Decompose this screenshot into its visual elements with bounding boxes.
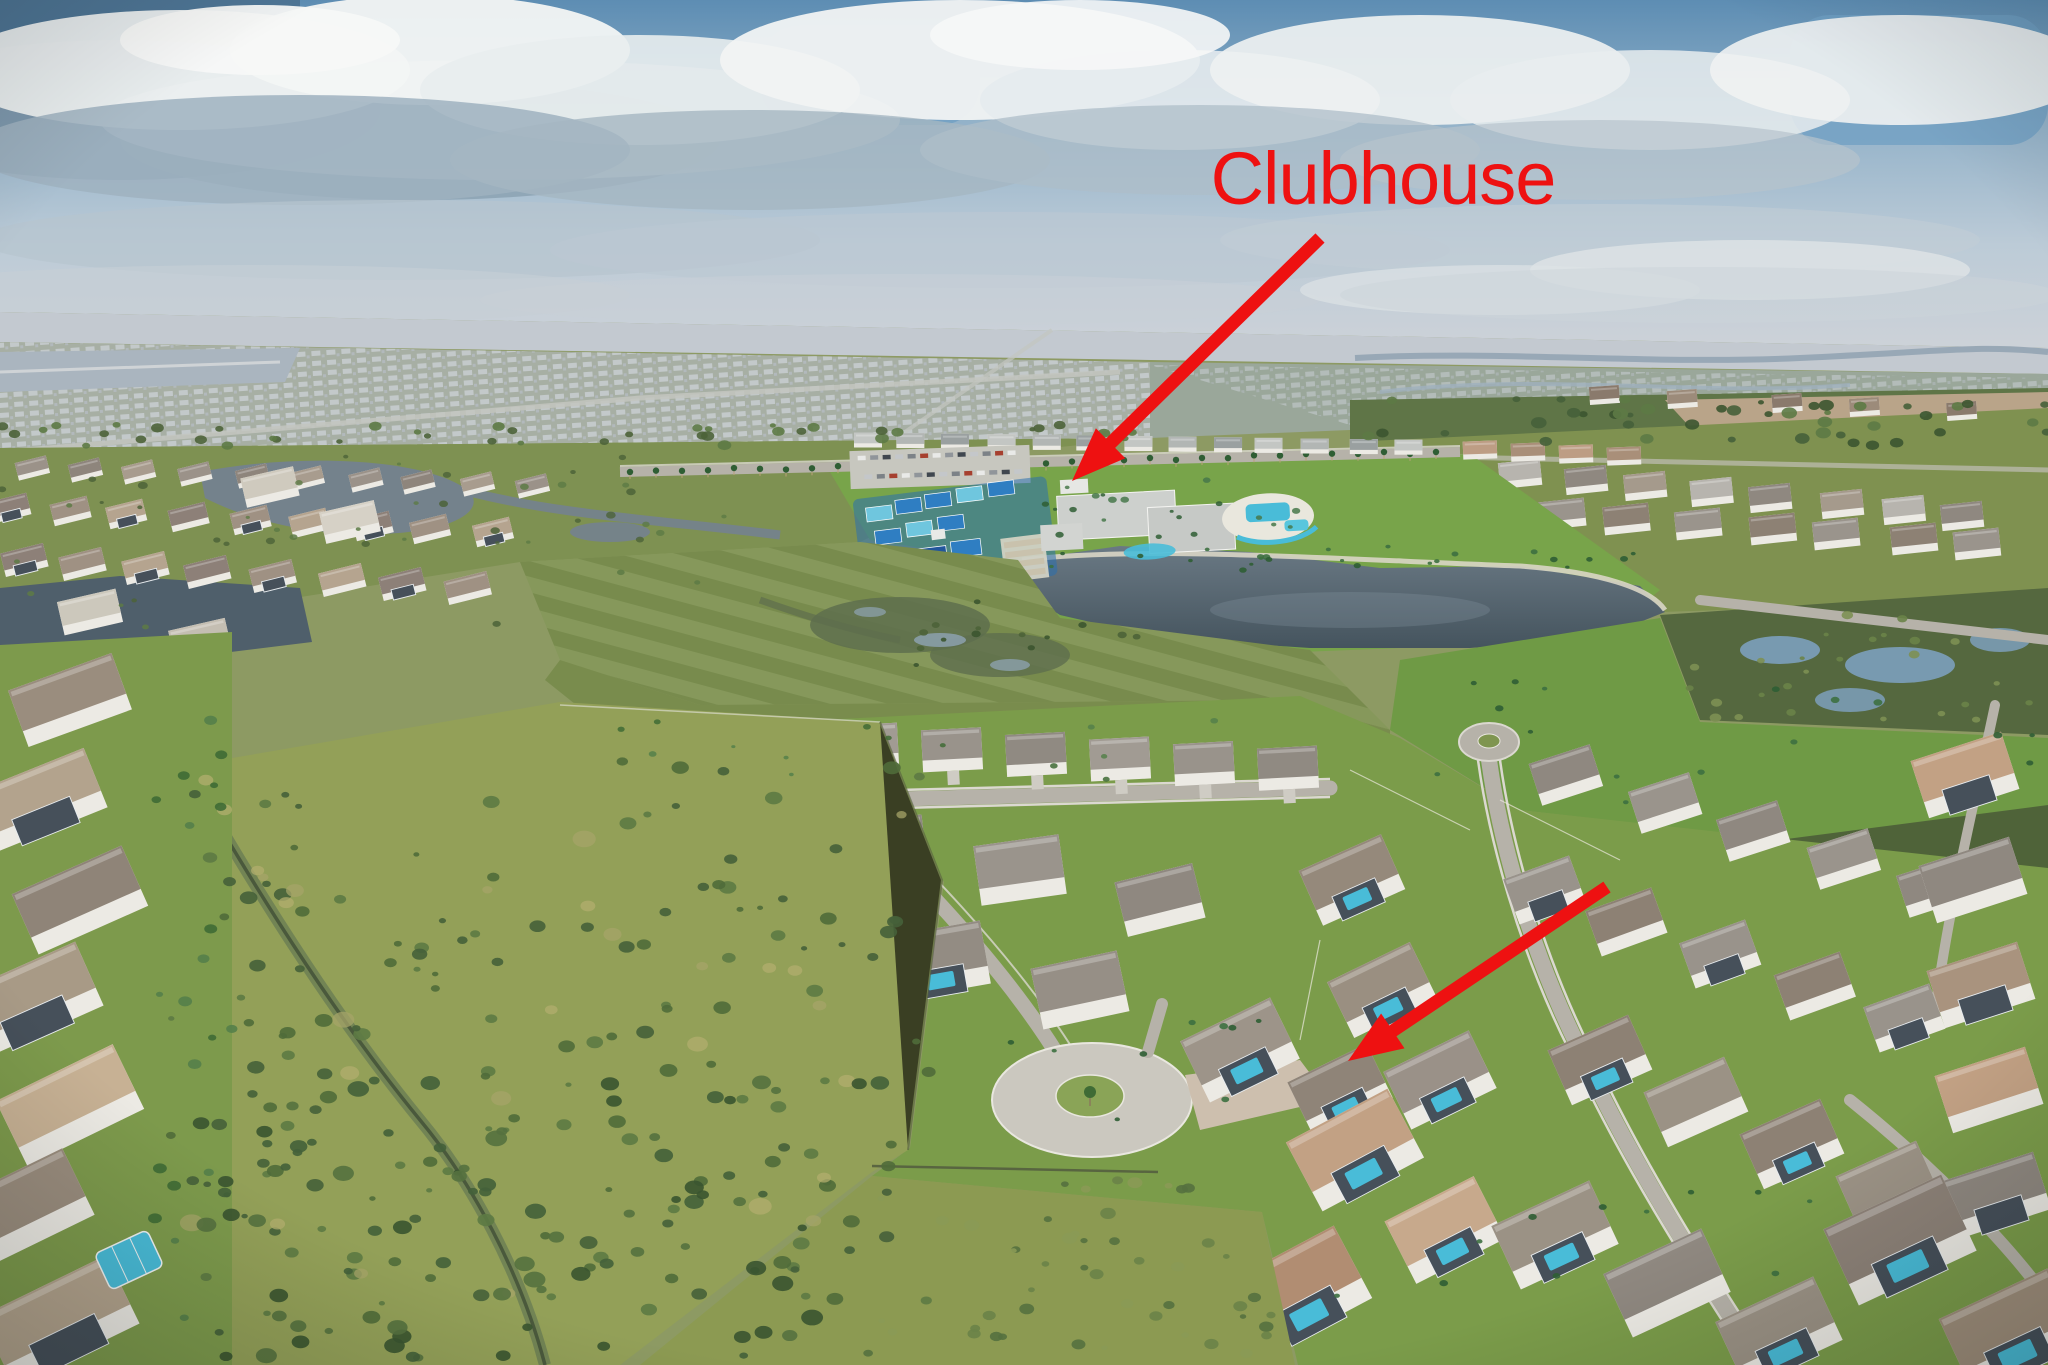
aerial-scene: Clubhouse bbox=[0, 0, 2048, 1365]
vignette bbox=[0, 0, 2048, 1365]
aerial-photo: Clubhouse bbox=[0, 0, 2048, 1365]
